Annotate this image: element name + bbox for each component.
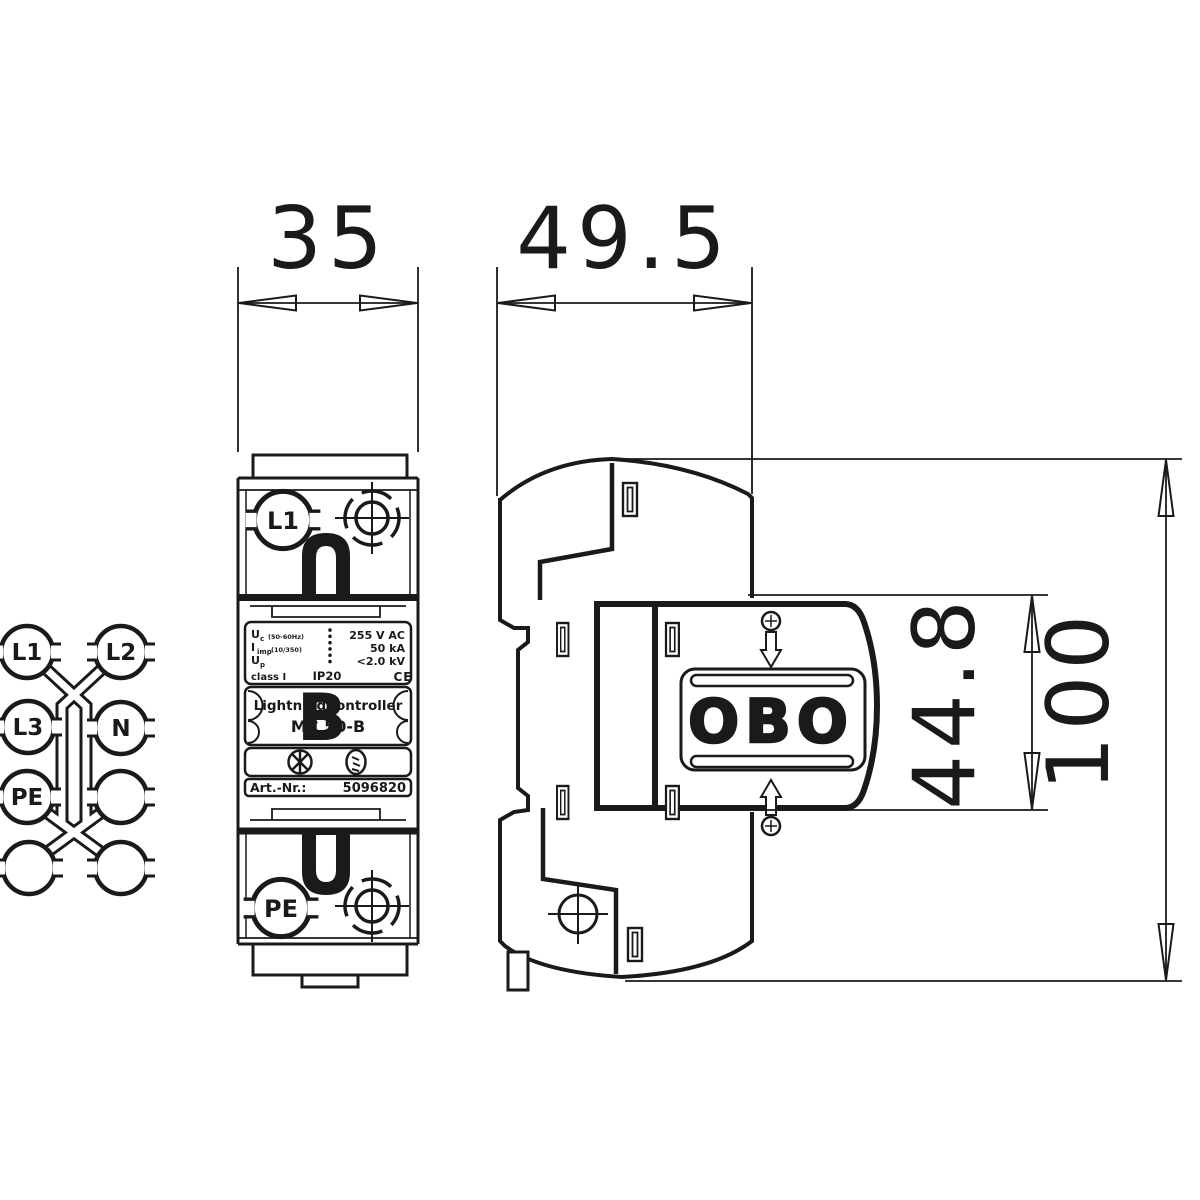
terminal-L1-label: L1 — [267, 507, 299, 535]
vent-slot-top — [623, 483, 637, 516]
dimensional-drawing: 35 49.5 L1 L2 L3 — [0, 0, 1200, 1200]
side-view: OBO — [500, 459, 877, 990]
phase-coding-schematic: L1 L2 L3 N PE — [0, 626, 155, 894]
spec-note-uc: (50-60Hz) — [268, 633, 304, 641]
art-number: 5096820 — [343, 781, 406, 796]
base-front-face-lower — [543, 808, 616, 974]
mounting-screw-icon — [548, 884, 608, 944]
spec-note-iimp: (10/350) — [271, 646, 302, 654]
vent-slot-bottom — [628, 928, 642, 961]
spec-value-uc: 255 V AC — [349, 629, 405, 642]
dimension-value-100: 100 — [1029, 609, 1129, 791]
product-name: LightningController — [254, 698, 403, 714]
technical-drawing-page: 35 49.5 L1 L2 L3 — [0, 0, 1200, 1200]
front-view: L1 U c (50-60Hz) 255 V AC I imp (10/350)… — [238, 455, 418, 987]
spec-sym-up: U — [251, 654, 260, 667]
dimension-front-width: 35 — [238, 189, 418, 452]
obo-logo-text: OBO — [688, 687, 854, 757]
bottom-foot-tab — [302, 975, 358, 987]
schematic-label-L3: L3 — [13, 715, 44, 741]
top-cap — [253, 455, 407, 478]
product-type: MC 50-B — [291, 717, 365, 736]
keyhole-icon — [347, 750, 366, 774]
dimension-value-49-5: 49.5 — [516, 189, 731, 289]
spec-value-up: <2.0 kV — [357, 655, 406, 668]
spec-sub-up: p — [260, 661, 265, 669]
base-front-face-upper — [540, 463, 612, 600]
base-left-edge-din-rail — [500, 498, 528, 942]
din-foot-tab — [508, 952, 528, 990]
dimension-side-depth: 49.5 — [497, 189, 752, 496]
spec-sym-uc: U — [251, 628, 260, 641]
art-label: Art.-Nr.: — [250, 780, 306, 795]
bottom-cap — [253, 944, 407, 975]
upper-latch-slot-inner — [316, 546, 336, 594]
terminal-PE-label: PE — [264, 895, 298, 923]
schematic-label-L2: L2 — [106, 640, 137, 666]
disposal-icon — [289, 751, 312, 774]
dimension-value-44-8: 44.8 — [895, 594, 995, 809]
extension-lines — [238, 267, 418, 452]
lower-step-tab — [250, 809, 406, 820]
spec-sym-iimp: I — [251, 641, 255, 654]
vent-slot-mid-lower — [557, 786, 568, 819]
lower-latch-slot-inner — [316, 835, 336, 882]
upper-step-tab — [250, 606, 406, 617]
schematic-label-N: N — [111, 716, 130, 742]
spec-class: class I — [251, 672, 286, 683]
base-bottom-outline — [500, 812, 752, 977]
module-slot-lower — [666, 786, 679, 819]
schematic-label-L1: L1 — [12, 640, 43, 666]
spec-sub-uc: c — [260, 635, 264, 643]
dimension-value-35: 35 — [267, 189, 388, 289]
schematic-label-PE: PE — [11, 785, 44, 811]
ce-mark: CE — [393, 670, 412, 684]
rating-label: U c (50-60Hz) 255 V AC I imp (10/350) 50… — [245, 622, 413, 796]
vent-slot-mid-upper — [557, 623, 568, 656]
module-slot-upper — [666, 623, 679, 656]
obo-logo-plate: OBO — [681, 669, 865, 770]
spec-value-iimp: 50 kA — [370, 642, 405, 655]
